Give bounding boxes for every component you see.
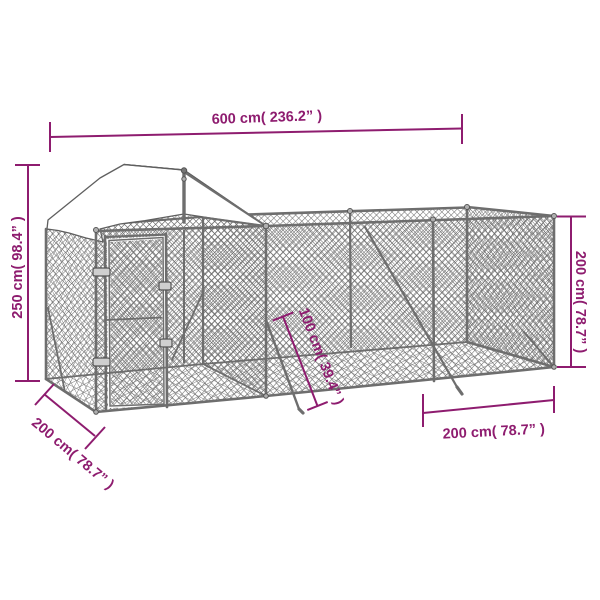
svg-text:200 cm( 78.7” ): 200 cm( 78.7” ) <box>572 251 588 354</box>
svg-text:250 cm( 98.4” ): 250 cm( 98.4” ) <box>10 216 26 319</box>
